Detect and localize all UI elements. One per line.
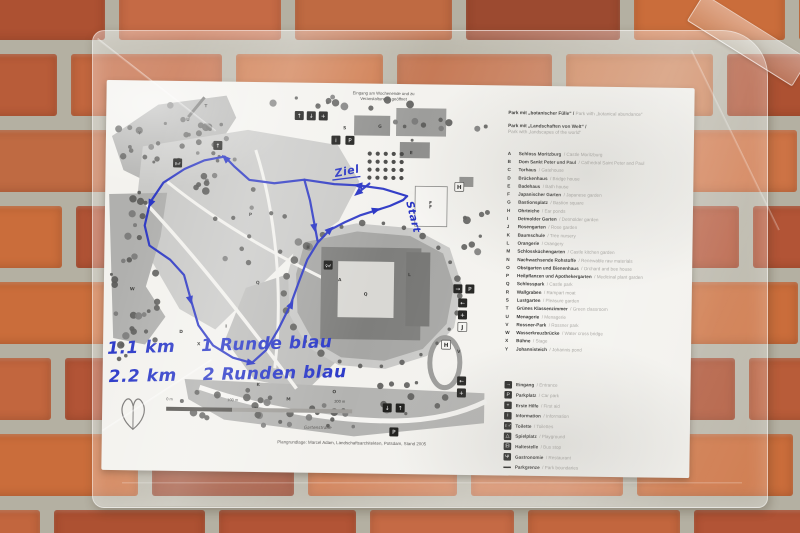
legend-title-2: Park mit „Landschaften von Welt“ / Park … [508,123,692,138]
svg-text:♀♂: ♀♂ [325,264,331,268]
svg-text:O: O [332,389,336,395]
svg-text:↓: ↓ [309,113,314,120]
restaurant-icon: Ψ [503,453,511,461]
scale-label-100: 100 m [227,398,238,403]
svg-text:+: + [460,313,465,319]
letter-F: F [429,204,432,210]
brick [0,54,57,116]
brick [0,206,62,268]
svg-text:E: E [410,150,413,156]
map-sheet: Eingang am Wochenende und zu Veranstaltu… [101,80,694,478]
svg-text:S: S [343,125,346,131]
legend-title-2-en: Park with „landscapes of the world“ [508,129,692,138]
svg-text:→: → [455,287,460,293]
svg-text:J: J [460,325,463,331]
brick [54,510,205,533]
legend-title-1-en: Park with „botanical abundance“ [574,110,642,116]
brick [694,510,800,533]
map-legend: Park mit „botanischer Fülle“ / Park with… [503,102,692,477]
toilets-icon: ♀♂ [504,422,512,430]
route-note-2: 2 Runden blau [203,362,347,385]
castle-wing [405,252,430,326]
svg-text:U: U [186,117,190,123]
svg-text:♀♂: ♀♂ [175,162,181,166]
svg-text:↑: ↑ [215,142,220,149]
scale-label-0: 0 m [166,397,173,402]
svg-text:←: ← [459,379,464,385]
leaf-logo-icon [116,394,151,432]
scale-label-300: 300 m [334,399,345,404]
entrance-arrow-icon: → [504,381,512,389]
brick [219,510,356,533]
svg-text:+: + [321,114,326,120]
orchard-dot-grid [367,151,404,180]
svg-text:D: D [179,329,183,335]
svg-text:↓: ↓ [385,405,390,412]
svg-text:H: H [457,185,462,191]
svg-text:W: W [130,286,135,292]
legend-icon-entry: Parkgrenze/ Park boundaries [503,462,687,475]
svg-text:L: L [408,272,411,278]
legend-title-1-de: Park mit „botanischer Fülle“ / [508,110,574,116]
svg-text:G: G [378,124,382,130]
brick [528,510,680,533]
information-icon: i [504,412,512,420]
svg-text:↑: ↑ [398,405,403,412]
park-boundary-icon [503,466,511,468]
distance-1: 1.1 km [107,337,176,359]
distance-2: 2.2 km [108,366,176,387]
photo-park-map-on-brick-wall: Eingang am Wochenende und zu Veranstaltu… [0,0,800,533]
svg-text:Q: Q [364,292,368,298]
castle-courtyard [337,261,394,318]
svg-text:↑: ↑ [297,113,302,120]
legend-entry: YJohannisteich/ Johannis pond [505,346,689,357]
brick [0,358,51,420]
car-park-icon: P [504,391,512,399]
legend-icon-entries: →Eingang/ EntrancePParkplatz/ Car park+E… [503,380,688,475]
svg-text:T: T [204,103,207,109]
bus-stop-icon: Ⓗ [504,443,512,451]
svg-text:Q: Q [256,280,260,286]
legend-title-1: Park mit „botanischer Fülle“ / Park with… [508,110,692,119]
building [400,142,430,158]
street-label: Gartenstraße [304,425,332,430]
building [396,108,446,137]
brick [0,0,105,40]
svg-text:+: + [459,391,464,397]
playground-icon: △ [504,432,512,440]
legend-entries: ASchloss Moritzburg/ Castle MoritzburgBD… [505,151,692,357]
route-note-1: 1 Runde blau [201,332,333,356]
svg-text:I: I [225,324,227,330]
brick [0,510,40,533]
svg-text:H: H [444,343,449,349]
first-aid-icon: + [504,402,512,410]
brick [370,510,514,533]
svg-text:←: ← [460,301,465,307]
building [354,115,390,136]
